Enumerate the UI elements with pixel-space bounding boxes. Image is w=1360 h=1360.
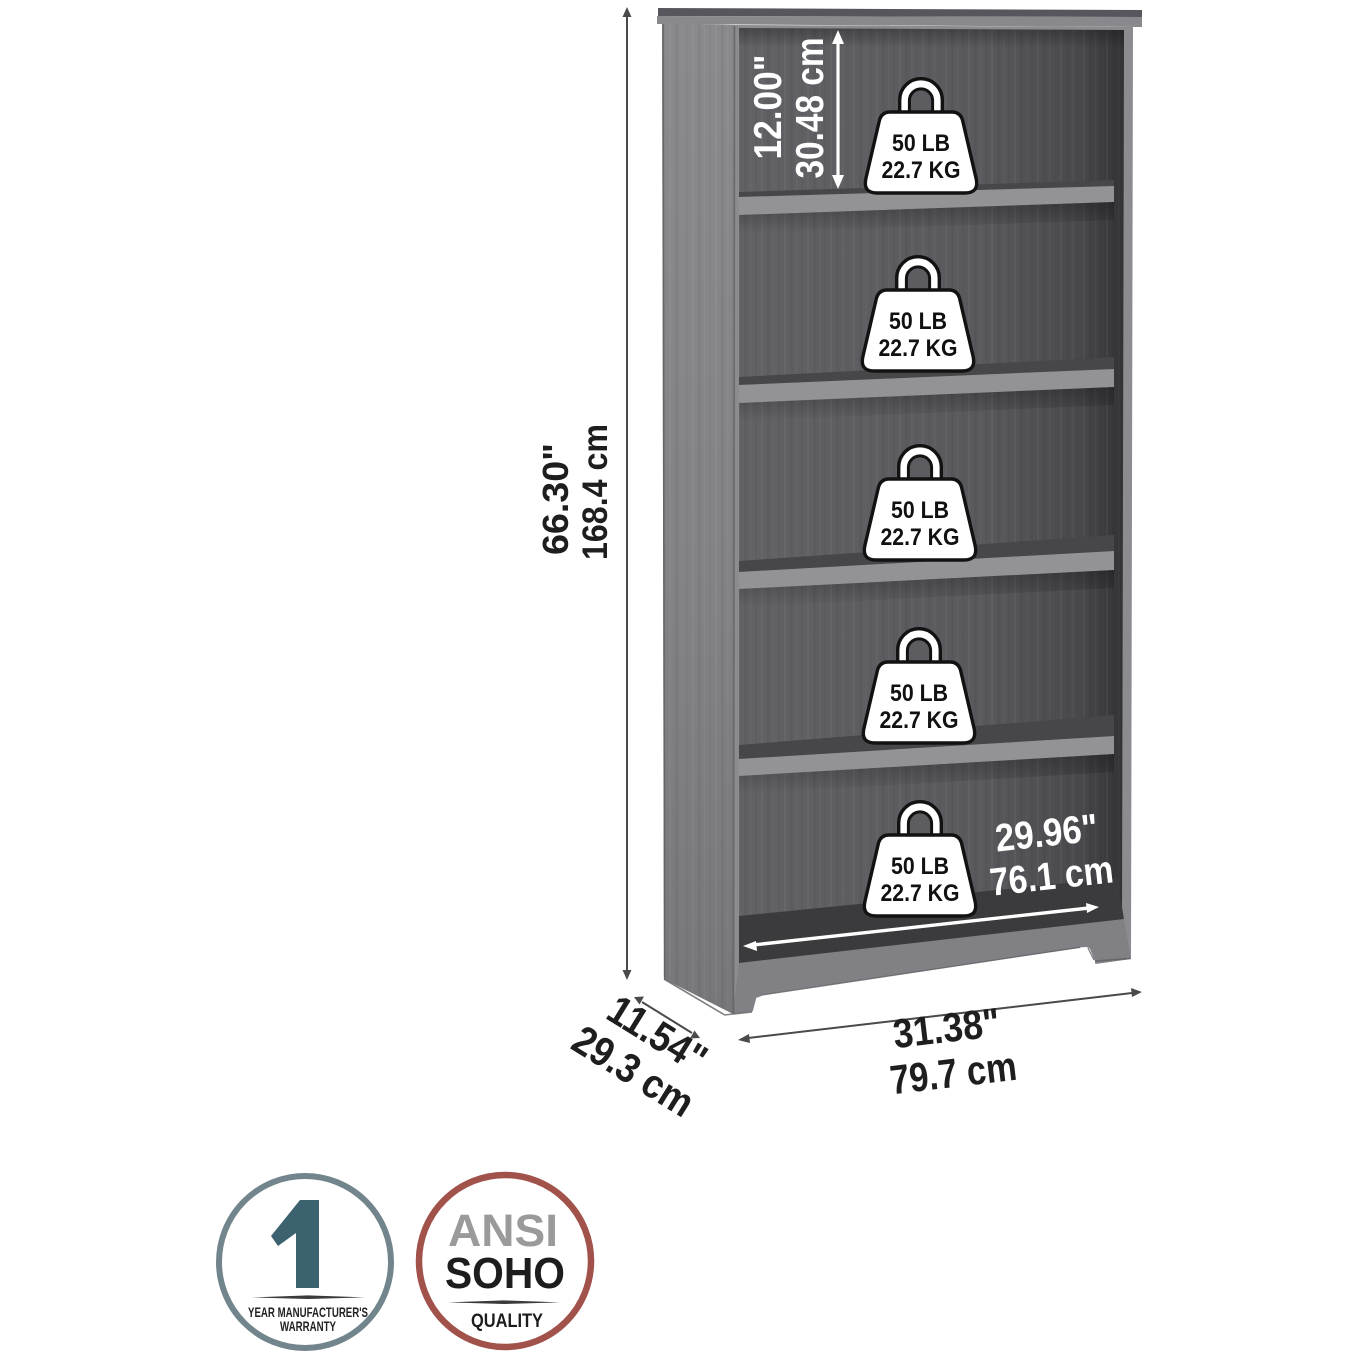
svg-text:12.00": 12.00"	[747, 55, 790, 160]
svg-text:30.48 cm: 30.48 cm	[789, 38, 832, 179]
svg-text:SOHO: SOHO	[445, 1249, 565, 1298]
svg-text:66.30": 66.30"	[535, 443, 576, 555]
svg-text:WARRANTY: WARRANTY	[280, 1318, 336, 1334]
svg-text:168.4 cm: 168.4 cm	[576, 424, 615, 560]
svg-text:QUALITY: QUALITY	[471, 1311, 543, 1332]
